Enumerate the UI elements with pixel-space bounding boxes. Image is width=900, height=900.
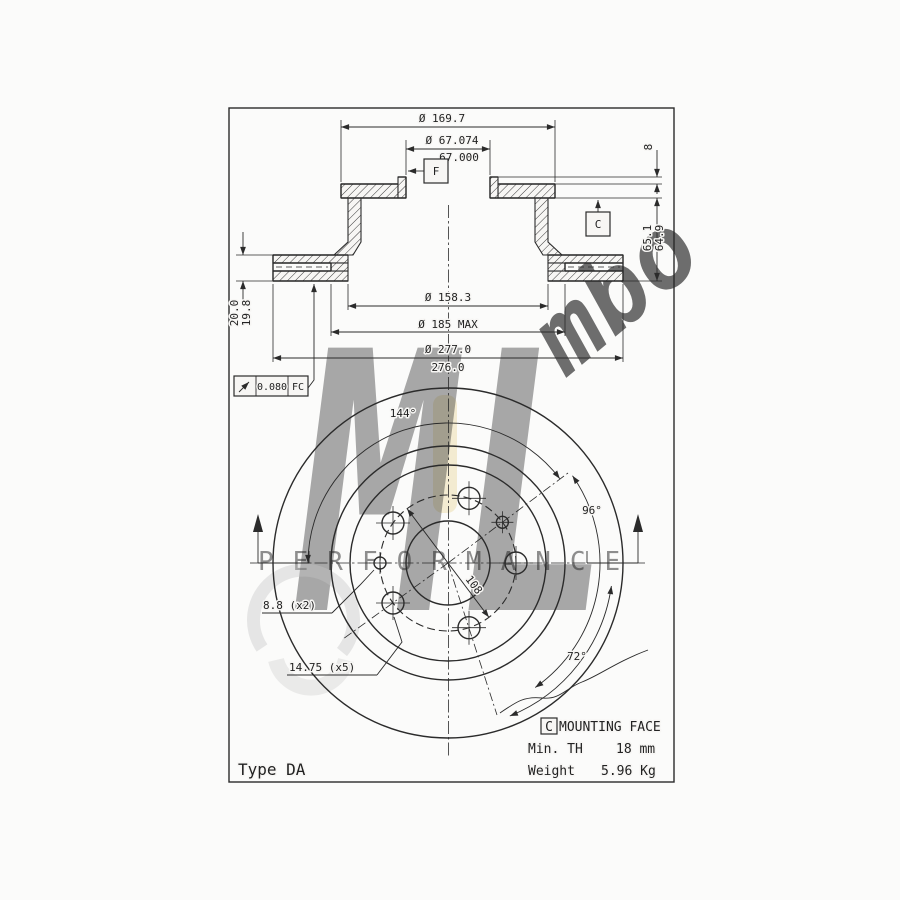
note-min-th-value: 18 mm xyxy=(616,742,655,757)
dim-height-lower: 64.9 xyxy=(653,225,666,252)
drawing-canvas: ML PERFORMANCE mbo xyxy=(0,0,900,900)
angle-mid-label: 96° xyxy=(582,504,602,517)
note-min-th-label: Min. TH xyxy=(528,742,583,757)
note-datum-ref: C xyxy=(545,720,553,735)
dim-bore-upper: Ø 67.074 xyxy=(426,134,479,147)
type-label: Type DA xyxy=(238,760,306,779)
dim-pilot-step: 8 xyxy=(642,144,655,151)
dim-outer-upper: Ø 277.0 xyxy=(425,343,471,356)
runout-value: 0.080 xyxy=(257,382,287,393)
dim-outer-lower: 276.0 xyxy=(431,361,464,374)
runout-datum: FC xyxy=(292,382,304,393)
note-weight-label: Weight xyxy=(528,764,575,779)
angle-small-label: 144° xyxy=(390,407,417,420)
bolt-holes-label: 14.75 (x5) xyxy=(289,661,355,674)
datum-c-label: C xyxy=(595,218,602,231)
dim-braking-inner: Ø 185 MAX xyxy=(418,318,478,331)
dim-thickness-lower: 19.8 xyxy=(240,300,253,327)
small-holes-label: 8.8 (x2) xyxy=(263,599,316,612)
note-weight-value: 5.96 Kg xyxy=(601,764,656,779)
datum-f-label: F xyxy=(433,165,440,178)
dim-hat-od: Ø 158.3 xyxy=(425,291,471,304)
note-mounting-face: MOUNTING FACE xyxy=(559,720,661,735)
dim-flange-od: Ø 169.7 xyxy=(419,112,465,125)
brake-disc-technical-drawing: ML PERFORMANCE mbo xyxy=(0,0,900,900)
angle-bolt-label: 72° xyxy=(567,650,587,663)
